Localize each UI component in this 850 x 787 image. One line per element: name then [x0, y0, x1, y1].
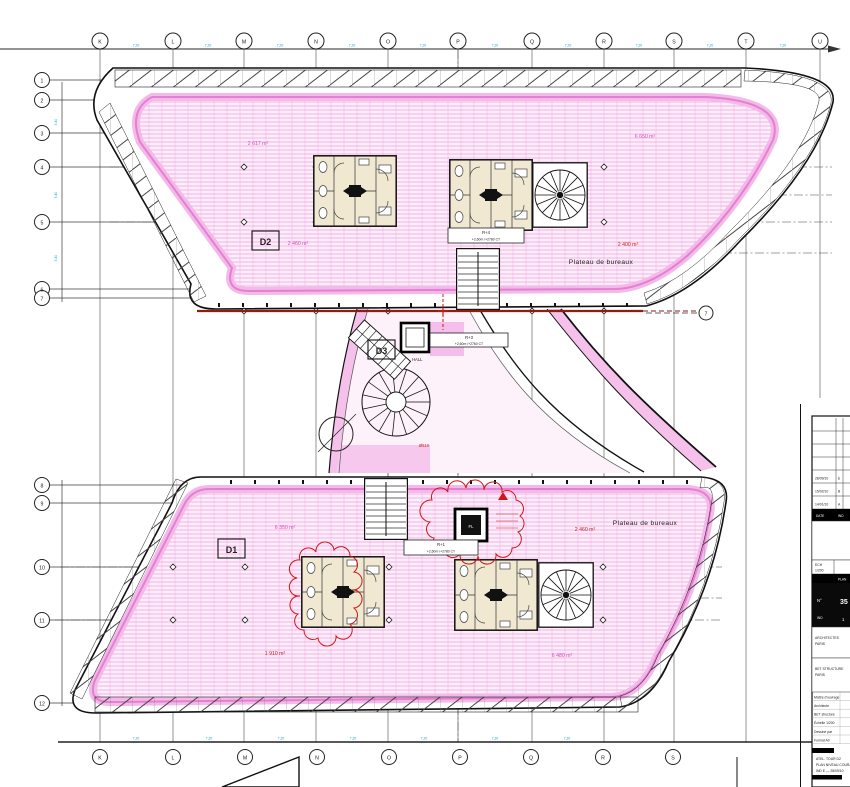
zone-label-d2: D2 — [260, 237, 272, 247]
sanitary-block-upper-left — [314, 156, 396, 226]
svg-text:IND E — 28/09/10: IND E — 28/09/10 — [816, 769, 844, 773]
svg-text:O: O — [387, 756, 391, 762]
svg-text:P: P — [458, 756, 462, 762]
svg-text:O: O — [386, 40, 390, 46]
svg-text:Dessiné par: Dessiné par — [814, 730, 833, 734]
svg-text:7,20: 7,20 — [636, 44, 643, 48]
svg-text:7: 7 — [705, 312, 708, 318]
scale-label: ECH — [815, 563, 823, 567]
svg-text:BET structure: BET structure — [814, 713, 835, 717]
fold-mark-triangle — [222, 757, 299, 787]
svg-text:7,20: 7,20 — [707, 44, 714, 48]
grid-bubbles-top — [92, 33, 828, 49]
elevator-fl: FL — [455, 509, 487, 541]
svg-text:P: P — [456, 40, 460, 46]
svg-text:11: 11 — [39, 619, 44, 625]
note-lower-l2: +2,60m /+2780 CT — [427, 550, 455, 554]
svg-text:K: K — [98, 40, 102, 46]
svg-text:PLAN NIVEAU COURANT: PLAN NIVEAU COURANT — [816, 763, 850, 767]
svg-text:2: 2 — [41, 99, 44, 105]
svg-text:3: 3 — [41, 132, 44, 138]
svg-text:N: N — [315, 756, 319, 762]
svg-text:7,20: 7,20 — [133, 44, 140, 48]
svg-text:K: K — [98, 756, 102, 762]
svg-text:L: L — [172, 756, 175, 762]
svg-text:5: 5 — [41, 221, 44, 227]
sanitary-block-upper-right — [450, 160, 532, 230]
svg-text:7,20: 7,20 — [780, 44, 787, 48]
rev-date-e: 28/09/10 — [815, 477, 828, 481]
area-lower-mid-red: 2 460 m² — [575, 527, 596, 533]
spiral-stair-upper — [533, 163, 587, 227]
elevator-shaft — [401, 323, 429, 352]
svg-text:M: M — [242, 40, 246, 46]
rev-date-b: 15/02/10 — [815, 490, 828, 494]
rev-header-ind: IND — [838, 514, 844, 518]
note-lower-l1: R+1 — [437, 542, 445, 547]
area-lower-right: 6 480 m² — [552, 653, 573, 659]
svg-text:7,20: 7,20 — [420, 44, 427, 48]
svg-text:PARIS: PARIS — [815, 673, 826, 677]
firm1: ARCHITECTES — [815, 636, 840, 640]
svg-text:7,20: 7,20 — [350, 737, 357, 741]
svg-text:10: 10 — [39, 566, 45, 572]
note-upper-l1: R+4 — [482, 230, 490, 235]
num-value: 35 — [840, 599, 848, 606]
svg-text:R: R — [602, 40, 606, 46]
grid-letters-bottom: K L M N O P Q R S — [98, 756, 675, 762]
svg-text:1: 1 — [41, 79, 44, 85]
zone-label-d1: D1 — [226, 545, 238, 555]
svg-text:7,20: 7,20 — [205, 44, 212, 48]
svg-text:PARIS: PARIS — [815, 642, 826, 646]
svg-text:4: 4 — [41, 166, 44, 172]
svg-text:5,40: 5,40 — [54, 255, 58, 262]
svg-text:5,40: 5,40 — [54, 119, 58, 126]
note-d610: Ø610 — [419, 443, 430, 448]
area-upper-right: 6 650 m² — [635, 134, 656, 140]
core-pink-patch2 — [336, 445, 430, 473]
svg-text:5,40: 5,40 — [54, 192, 58, 199]
plateau-label-upper: Plateau de bureaux — [569, 259, 634, 266]
firm2: BET STRUCTURE — [815, 667, 844, 671]
zone-label-d3: D3 — [376, 346, 388, 356]
rev-header-date: DATE — [816, 514, 824, 518]
wing-d1-facade-bottom — [95, 697, 638, 712]
stair-lower-core — [365, 479, 408, 540]
svg-text:Échelle 1/200: Échelle 1/200 — [814, 720, 835, 725]
rev-date-a: 14/01/10 — [815, 503, 828, 507]
area-upper-left: 2 617 m² — [248, 141, 269, 147]
area-lower-red: 1 910 m² — [265, 651, 286, 657]
svg-text:7,20: 7,20 — [565, 44, 572, 48]
note-upper-l2: +2,60m /+2780 CT — [472, 238, 500, 242]
scale-value: 1/200 — [815, 569, 824, 573]
note-mid-l1: R+3 — [465, 335, 473, 340]
sanitary-block-lower-left — [302, 557, 384, 627]
title-block: 28/09/10 E 15/02/10 B 14/01/10 A DATE IN… — [801, 404, 850, 787]
svg-text:Architecte: Architecte — [814, 704, 829, 708]
bar1-label: PLAN — [838, 578, 847, 582]
stair-upper-core — [457, 249, 500, 310]
grid-dims-bottom: 7,20 7,20 7,20 7,20 7,20 7,20 7,20 — [133, 737, 571, 741]
svg-text:S: S — [671, 756, 675, 762]
core-d3 — [318, 309, 716, 473]
svg-text:7,20: 7,20 — [492, 44, 499, 48]
svg-text:12: 12 — [39, 702, 45, 708]
spiral-stair-lower — [539, 563, 593, 627]
svg-text:6: 6 — [41, 288, 44, 294]
svg-text:7,20: 7,20 — [133, 737, 140, 741]
floor-plan-canvas: FL D2 D1 D3 HALL Plateau de bureaux Plat… — [0, 0, 850, 787]
plateau-label-lower: Plateau de bureaux — [613, 520, 678, 527]
svg-text:Q: Q — [529, 756, 533, 762]
svg-text:8: 8 — [41, 484, 44, 490]
svg-text:Format A0: Format A0 — [814, 738, 830, 742]
svg-text:S: S — [672, 40, 676, 46]
grid-dims-left: 5,40 5,40 5,40 — [54, 119, 58, 262]
svg-text:ATEL. TOUR D2: ATEL. TOUR D2 — [816, 757, 841, 761]
note-mid-l2: +2,60m /+2760 CT — [455, 342, 483, 346]
svg-text:9: 9 — [41, 502, 44, 508]
svg-text:L: L — [172, 40, 175, 46]
ind-label: IND — [817, 616, 823, 620]
hall-label: HALL — [412, 357, 423, 362]
num-label: N° — [817, 598, 822, 603]
svg-text:Q: Q — [530, 40, 534, 46]
curved-facade-1 — [561, 309, 716, 467]
svg-text:7,20: 7,20 — [564, 737, 571, 741]
svg-text:7,20: 7,20 — [349, 44, 356, 48]
svg-text:7,20: 7,20 — [421, 737, 428, 741]
area-upper-red: 2 400 m² — [618, 242, 639, 248]
svg-text:R: R — [601, 756, 605, 762]
sanitary-block-lower-right — [455, 560, 537, 630]
svg-text:7,20: 7,20 — [278, 737, 285, 741]
svg-text:M: M — [243, 756, 247, 762]
wing-d2-facade-top — [115, 70, 741, 87]
svg-text:N: N — [314, 40, 318, 46]
elevator-fl-label: FL — [469, 524, 475, 529]
svg-text:7,20: 7,20 — [492, 737, 499, 741]
svg-text:7: 7 — [41, 297, 44, 303]
svg-text:7,20: 7,20 — [277, 44, 284, 48]
svg-text:U: U — [818, 40, 822, 46]
area-upper-mid: 2 460 m² — [288, 241, 309, 247]
svg-text:7,20: 7,20 — [206, 737, 213, 741]
svg-text:Maître d'ouvrage: Maître d'ouvrage — [814, 696, 839, 700]
area-lower-left: 6 350 m² — [275, 525, 296, 531]
